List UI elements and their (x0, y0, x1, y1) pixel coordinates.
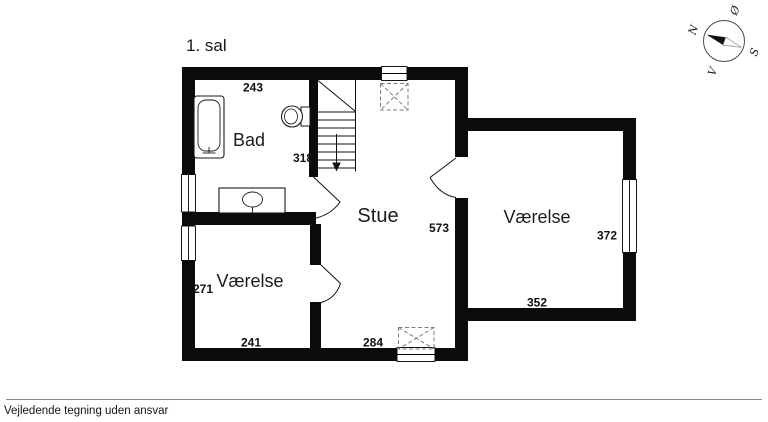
stair-cut-line (318, 81, 356, 112)
room-label-bad: Bad (233, 130, 265, 150)
roof-window-bottom (399, 328, 435, 350)
compass-label-v: V (705, 65, 720, 78)
room-label-stue: Stue (357, 205, 398, 227)
bathtub-icon (194, 96, 224, 158)
window-top-wall (382, 67, 408, 81)
dim-271: 271 (193, 282, 213, 296)
roof-window-top (381, 84, 409, 111)
wall-vaerelse-left-a (310, 224, 321, 265)
wall-right-room-top (455, 118, 636, 131)
door-vaerelse-left-to-stue (321, 265, 341, 303)
dim-241: 241 (241, 336, 261, 350)
staircase (318, 80, 356, 172)
door-bad-to-stue (314, 177, 341, 218)
dim-243: 243 (243, 81, 263, 95)
window-left-wall-lower (182, 226, 196, 261)
sink-vanity-icon (219, 188, 285, 214)
room-label-vaerelse-right: Værelse (503, 207, 570, 227)
wall-right-room-bottom (455, 308, 636, 321)
compass-label-n: N (685, 23, 701, 38)
wall-vaerelse-left-b (310, 302, 321, 348)
door-stue-to-vaerelse-right (430, 158, 456, 198)
floor-plan: 1. sal (0, 0, 768, 422)
dim-352: 352 (527, 296, 547, 310)
compass-rose: N Ø S V (675, 0, 768, 89)
stair-down-arrow-icon (332, 163, 341, 172)
wall-right-lower (455, 198, 468, 361)
dim-318: 318 (293, 151, 313, 165)
window-left-wall-upper (182, 175, 196, 213)
room-label-vaerelse-left: Værelse (216, 271, 283, 291)
wall-bad-bottom (182, 212, 316, 225)
dim-372: 372 (597, 229, 617, 243)
wall-top (182, 67, 468, 80)
window-bottom-wall (397, 348, 435, 362)
floor-plan-page: 1. sal (0, 0, 768, 422)
page-title: 1. sal (186, 36, 227, 55)
wall-right-upper (455, 67, 468, 157)
toilet-icon (282, 106, 311, 127)
dim-573: 573 (429, 221, 449, 235)
compass-label-e: Ø (727, 3, 743, 18)
dim-284: 284 (363, 336, 383, 350)
compass-label-s: S (747, 46, 762, 58)
window-right-wall (623, 180, 637, 253)
disclaimer-text: Vejledende tegning uden ansvar (4, 405, 169, 417)
